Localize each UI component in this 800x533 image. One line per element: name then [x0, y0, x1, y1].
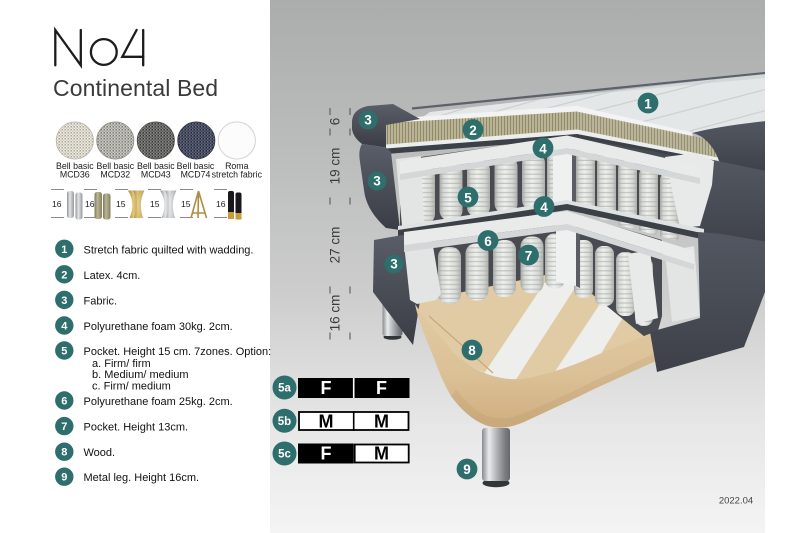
svg-text:16: 16: [85, 199, 95, 209]
svg-text:a. Firm/ firm: a. Firm/ firm: [92, 358, 151, 370]
svg-text:MCD43: MCD43: [141, 170, 171, 180]
svg-text:16: 16: [216, 199, 226, 209]
svg-text:Polyurethane foam 30kg. 2cm.: Polyurethane foam 30kg. 2cm.: [84, 321, 233, 333]
svg-text:MCD32: MCD32: [100, 170, 130, 180]
svg-text:Stretch fabric quilted with wa: Stretch fabric quilted with wadding.: [84, 244, 254, 256]
svg-text:c. Firm/ medium: c. Firm/ medium: [92, 380, 171, 392]
svg-text:4: 4: [61, 321, 68, 333]
svg-text:Latex. 4cm.: Latex. 4cm.: [84, 270, 141, 282]
svg-text:Wood.: Wood.: [84, 447, 116, 459]
svg-text:Polyurethane foam 25kg. 2cm.: Polyurethane foam 25kg. 2cm.: [84, 396, 233, 408]
svg-text:15: 15: [181, 199, 191, 209]
svg-text:15: 15: [116, 199, 126, 209]
svg-text:Pocket. Height 15 cm. 7zones.: Pocket. Height 15 cm. 7zones. Option:: [84, 346, 272, 358]
svg-text:1: 1: [61, 244, 67, 256]
svg-text:Metal leg. Height 16cm.: Metal leg. Height 16cm.: [84, 472, 200, 484]
svg-text:2: 2: [61, 269, 67, 281]
svg-text:3: 3: [61, 295, 67, 307]
svg-text:MCD74: MCD74: [181, 170, 211, 180]
svg-text:Pocket. Height 13cm.: Pocket. Height 13cm.: [84, 422, 189, 434]
svg-text:b. Medium/ medium: b. Medium/ medium: [92, 369, 189, 381]
svg-text:16: 16: [52, 199, 62, 209]
svg-text:MCD36: MCD36: [60, 170, 90, 180]
svg-text:Fabric.: Fabric.: [84, 295, 118, 307]
svg-text:9: 9: [61, 472, 67, 484]
svg-text:8: 8: [61, 447, 67, 459]
svg-text:5: 5: [61, 346, 67, 358]
svg-text:15: 15: [150, 199, 160, 209]
svg-text:stretch fabric: stretch fabric: [212, 170, 263, 180]
svg-text:6: 6: [61, 396, 67, 408]
svg-text:7: 7: [61, 421, 67, 433]
